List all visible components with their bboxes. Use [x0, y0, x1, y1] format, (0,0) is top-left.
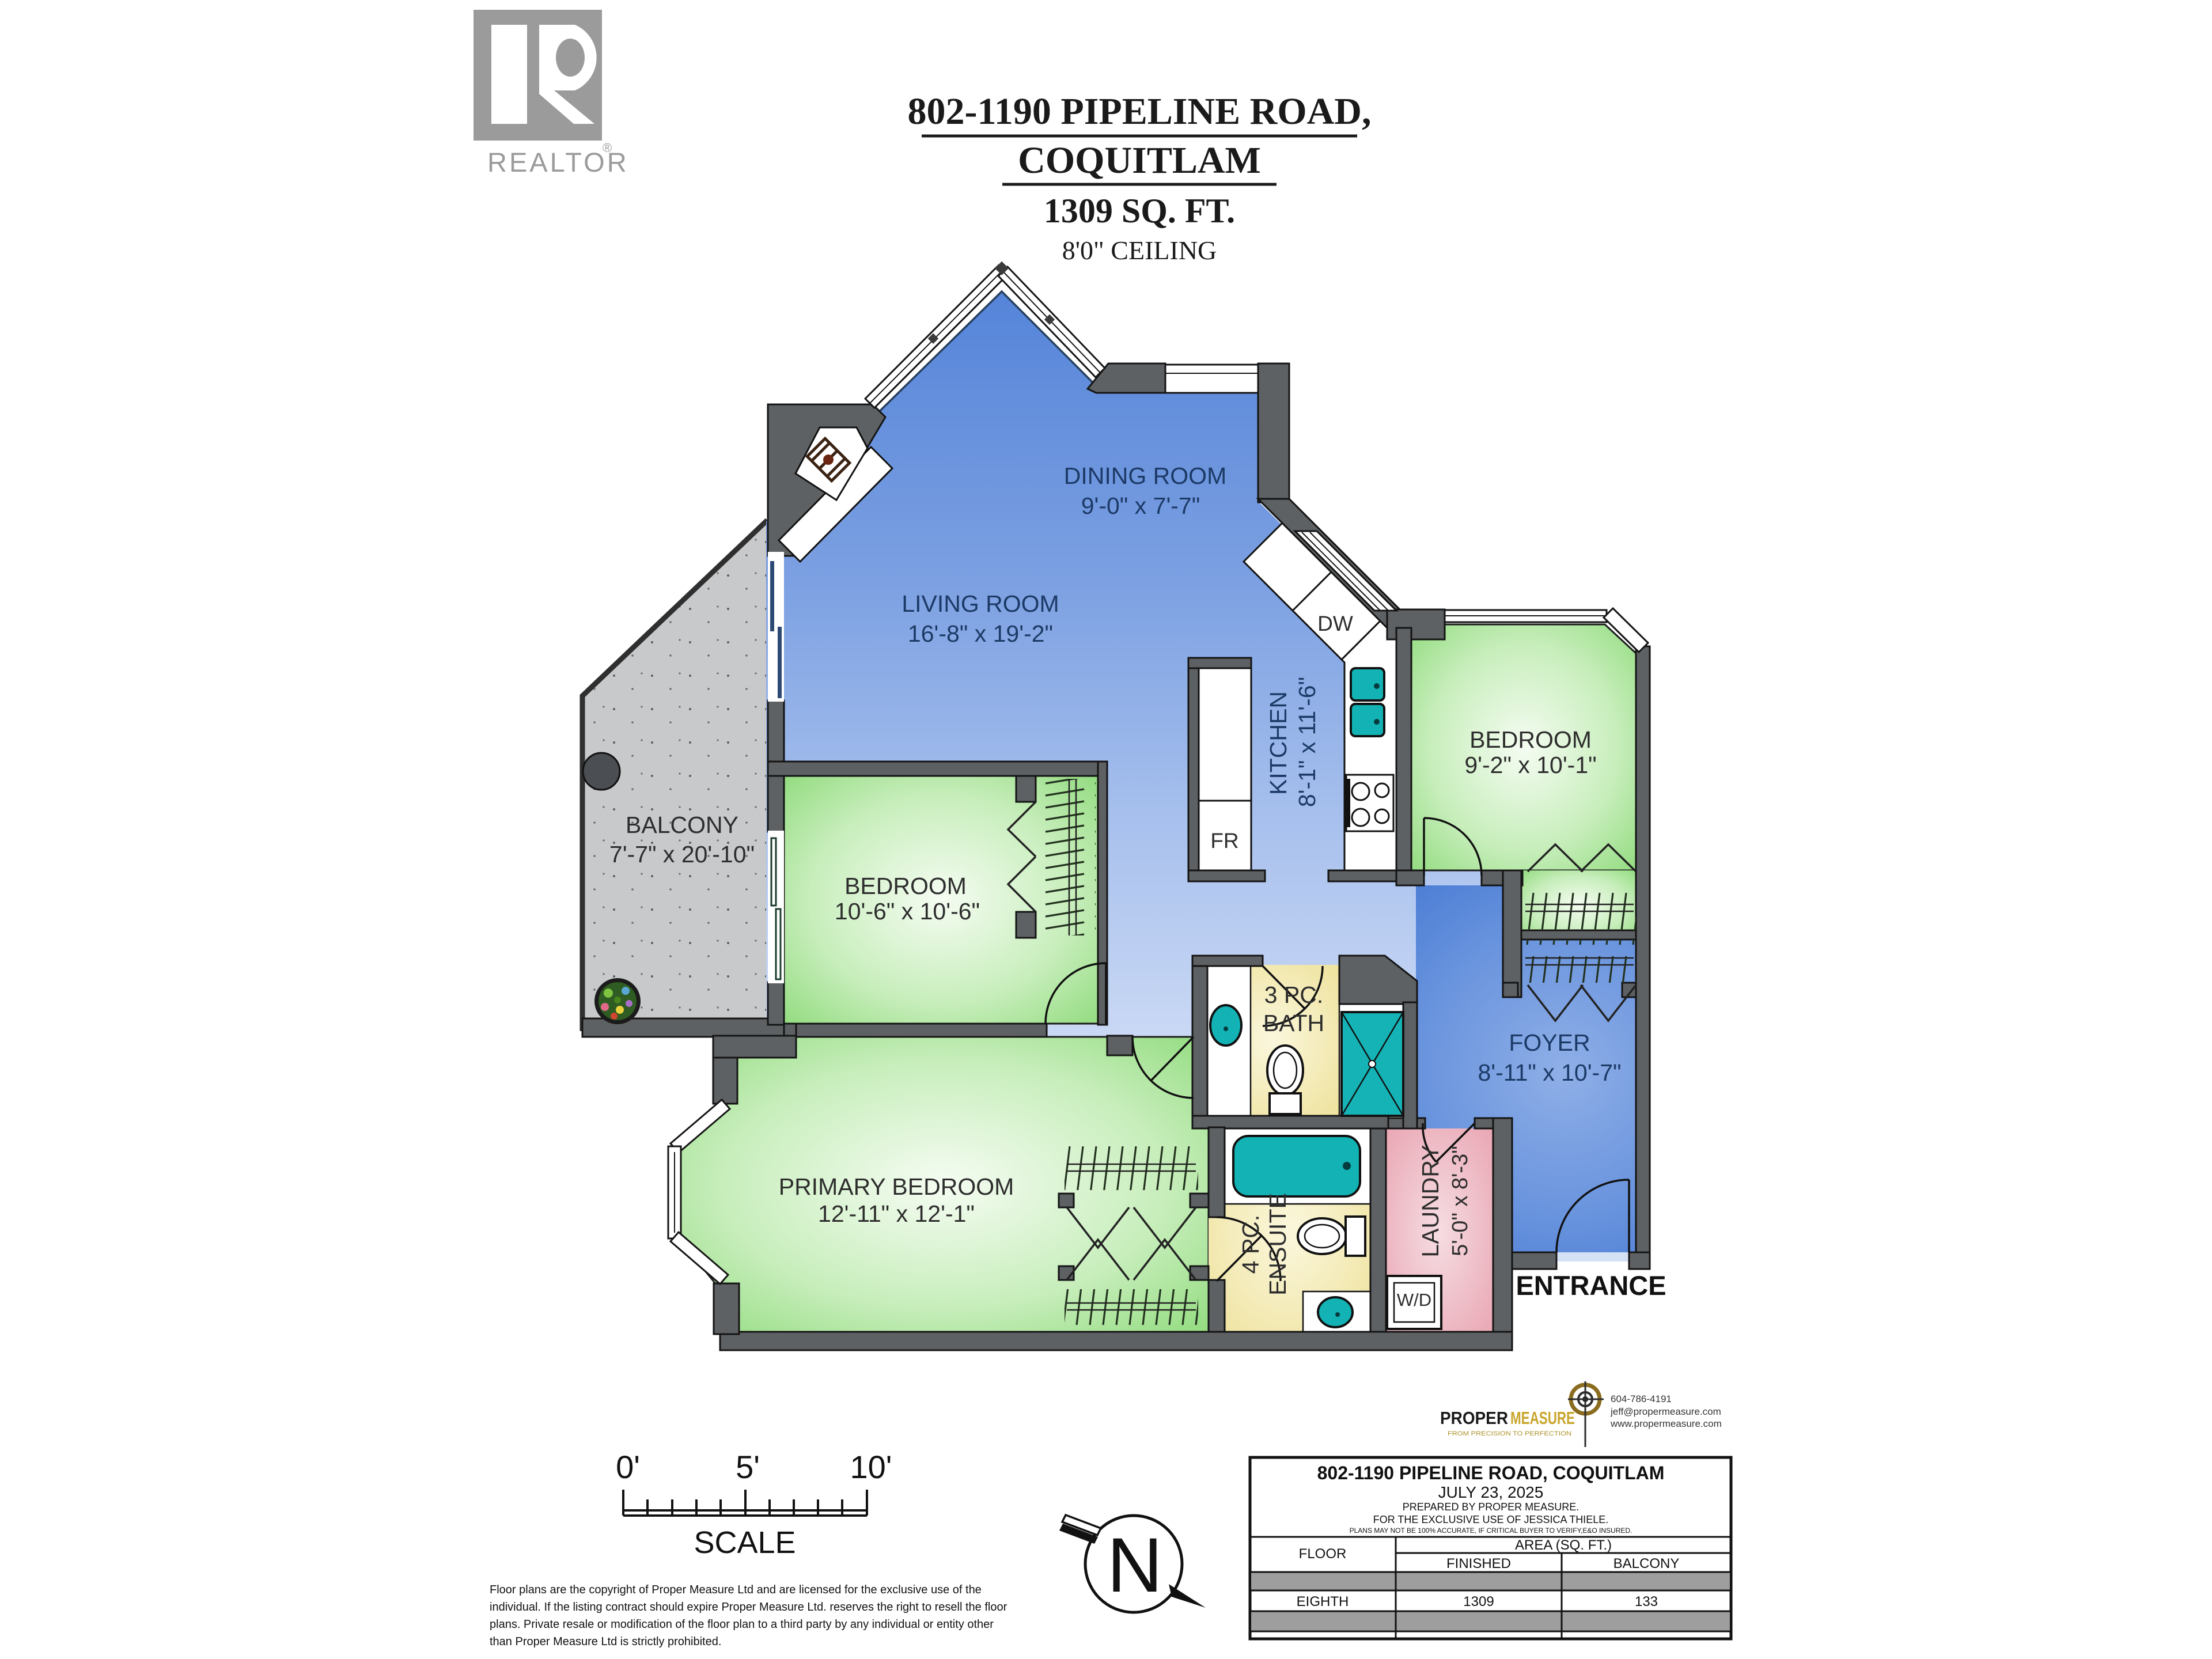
- svg-text:9'-2" x 10'-1": 9'-2" x 10'-1": [1464, 752, 1596, 778]
- svg-text:BEDROOM: BEDROOM: [1469, 726, 1592, 753]
- svg-text:5': 5': [736, 1449, 760, 1485]
- svg-text:BALCONY: BALCONY: [626, 812, 738, 838]
- svg-text:10'-6" x 10'-6": 10'-6" x 10'-6": [835, 898, 980, 925]
- svg-text:MEASURE: MEASURE: [1510, 1408, 1575, 1428]
- svg-text:0': 0': [616, 1449, 640, 1485]
- svg-text:BATH: BATH: [1263, 1010, 1324, 1036]
- svg-text:DINING ROOM: DINING ROOM: [1064, 463, 1226, 489]
- svg-text:PRIMARY BEDROOM: PRIMARY BEDROOM: [779, 1173, 1014, 1200]
- svg-text:www.propermeasure.com: www.propermeasure.com: [1610, 1418, 1722, 1429]
- svg-text:BALCONY: BALCONY: [1613, 1556, 1680, 1571]
- svg-text:8'-11" x 10'-7": 8'-11" x 10'-7": [1478, 1059, 1621, 1086]
- svg-text:PROPER: PROPER: [1440, 1408, 1508, 1428]
- svg-text:604-786-4191: 604-786-4191: [1611, 1393, 1672, 1404]
- svg-text:COQUITLAM: COQUITLAM: [1018, 139, 1261, 181]
- svg-text:jeff@propermeasure.com: jeff@propermeasure.com: [1610, 1406, 1721, 1417]
- svg-text:SCALE: SCALE: [694, 1525, 796, 1560]
- svg-text:FOR THE EXCLUSIVE USE OF JESSI: FOR THE EXCLUSIVE USE OF JESSICA THIELE.: [1373, 1514, 1608, 1525]
- svg-text:10': 10': [850, 1449, 892, 1485]
- svg-text:DW: DW: [1317, 612, 1353, 635]
- svg-text:9'-0" x 7'-7": 9'-0" x 7'-7": [1081, 493, 1200, 519]
- svg-text:8'0" CEILING: 8'0" CEILING: [1062, 236, 1217, 265]
- svg-text:individual. If the listing co: individual. If the listing contract shou…: [490, 1601, 1007, 1613]
- svg-text:ENSUITE: ENSUITE: [1264, 1193, 1291, 1296]
- svg-text:FINISHED: FINISHED: [1446, 1556, 1511, 1571]
- svg-text:3 PC.: 3 PC.: [1264, 982, 1324, 1008]
- svg-text:FR: FR: [1210, 829, 1238, 853]
- svg-text:plans. Private resale or modi: plans. Private resale or modification of…: [490, 1618, 994, 1631]
- svg-text:16'-8" x 19'-2": 16'-8" x 19'-2": [908, 620, 1053, 647]
- svg-text:802-1190 PIPELINE ROAD, COQUIT: 802-1190 PIPELINE ROAD, COQUITLAM: [1317, 1463, 1665, 1483]
- svg-text:LAUNDRY: LAUNDRY: [1417, 1145, 1444, 1257]
- svg-text:N: N: [1107, 1522, 1163, 1608]
- svg-text:PREPARED BY PROPER MEASURE.: PREPARED BY PROPER MEASURE.: [1403, 1501, 1579, 1513]
- svg-text:Floor plans are the copyright: Floor plans are the copyright of Proper …: [490, 1584, 982, 1596]
- svg-text:KITCHEN: KITCHEN: [1265, 691, 1291, 795]
- svg-text:802-1190 PIPELINE ROAD,: 802-1190 PIPELINE ROAD,: [908, 90, 1372, 132]
- svg-text:4 PC.: 4 PC.: [1237, 1215, 1264, 1274]
- svg-text:than Proper Measure Ltd is str: than Proper Measure Ltd is strictly proh…: [490, 1635, 721, 1648]
- svg-text:FROM PRECISION TO PERFECTION: FROM PRECISION TO PERFECTION: [1448, 1430, 1571, 1437]
- svg-text:AREA (SQ. FT.): AREA (SQ. FT.): [1515, 1537, 1612, 1553]
- svg-text:FLOOR: FLOOR: [1299, 1546, 1347, 1562]
- svg-text:®: ®: [603, 141, 612, 155]
- svg-text:JULY 23, 2025: JULY 23, 2025: [1438, 1483, 1544, 1501]
- svg-text:1309: 1309: [1463, 1594, 1494, 1609]
- svg-text:ENTRANCE: ENTRANCE: [1516, 1270, 1666, 1301]
- svg-text:PLANS MAY NOT BE 100% ACCURATE: PLANS MAY NOT BE 100% ACCURATE, IF CRITI…: [1350, 1527, 1633, 1535]
- svg-text:BEDROOM: BEDROOM: [844, 873, 967, 899]
- svg-text:EIGHTH: EIGHTH: [1297, 1594, 1349, 1609]
- svg-text:7'-7" x 20'-10": 7'-7" x 20'-10": [609, 841, 755, 868]
- svg-text:5'-0" x 8'-3": 5'-0" x 8'-3": [1448, 1146, 1472, 1256]
- svg-text:133: 133: [1635, 1594, 1658, 1609]
- svg-text:12'-11" x 12'-1": 12'-11" x 12'-1": [818, 1200, 975, 1227]
- svg-text:1309 SQ. FT.: 1309 SQ. FT.: [1044, 192, 1235, 230]
- svg-text:LIVING ROOM: LIVING ROOM: [902, 590, 1059, 617]
- svg-text:W/D: W/D: [1397, 1290, 1431, 1310]
- svg-text:8'-1" x 11'-6": 8'-1" x 11'-6": [1294, 677, 1320, 807]
- svg-text:FOYER: FOYER: [1509, 1029, 1590, 1056]
